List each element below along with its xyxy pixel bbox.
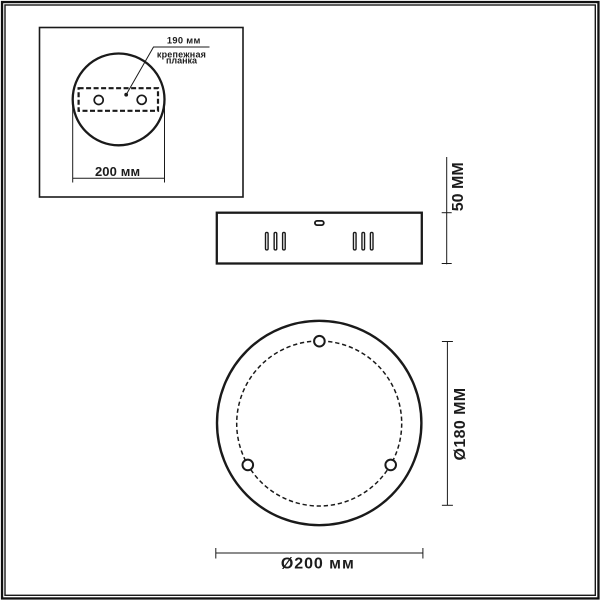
svg-text:200 мм: 200 мм <box>95 164 140 179</box>
svg-text:50 ММ: 50 ММ <box>450 162 467 211</box>
svg-text:планка: планка <box>166 55 198 65</box>
svg-text:Ø180 ММ: Ø180 ММ <box>452 387 469 460</box>
svg-text:Ø200 мм: Ø200 мм <box>281 556 355 573</box>
svg-text:190 мм: 190 мм <box>167 36 201 46</box>
